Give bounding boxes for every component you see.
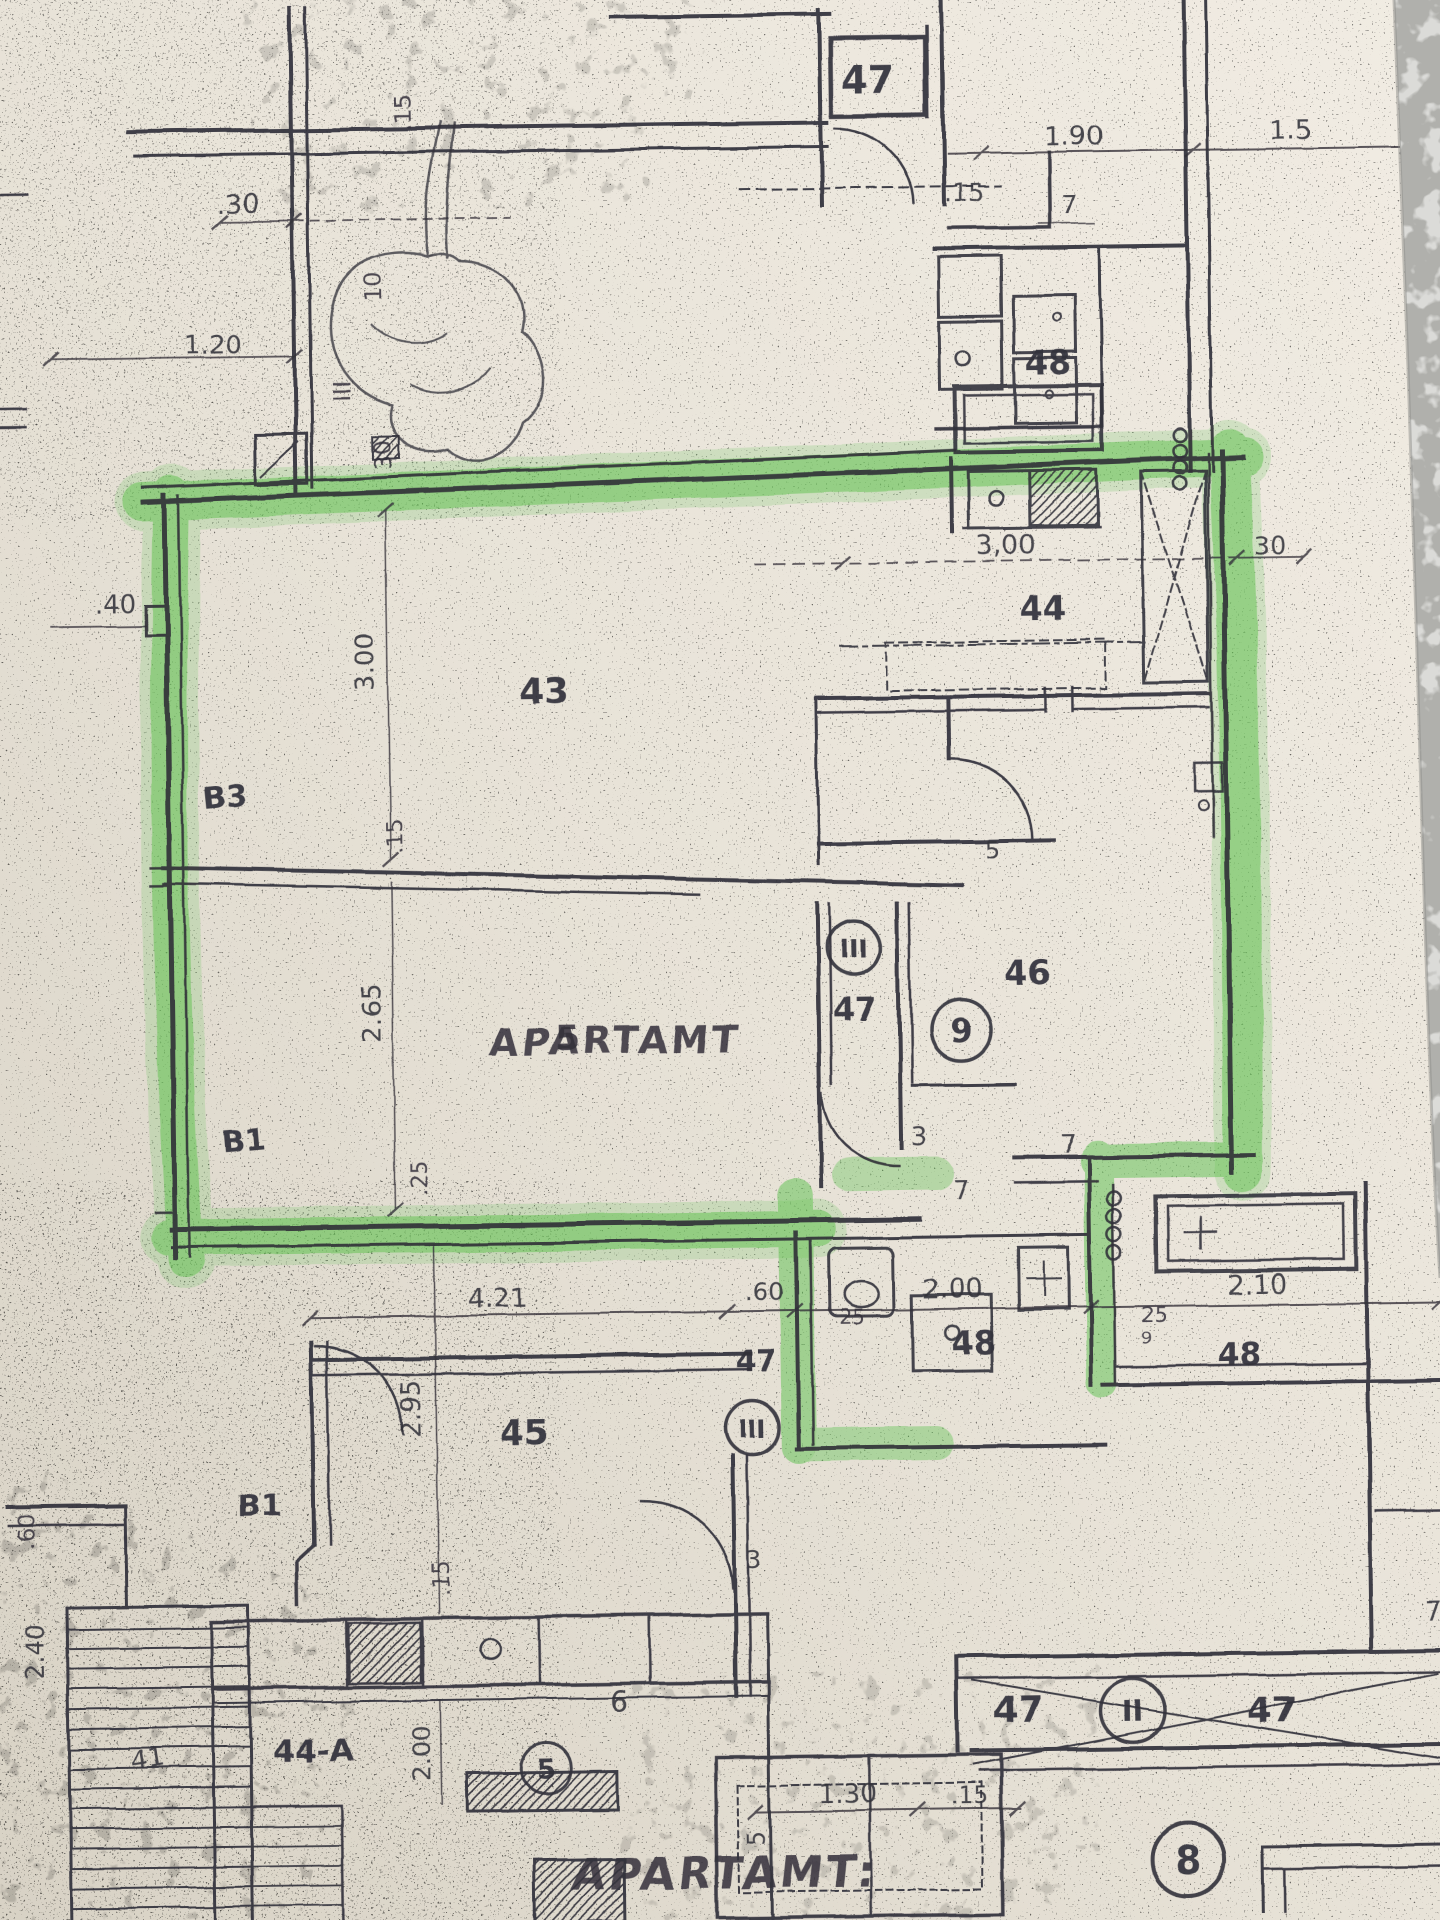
dim-15-lower-vert: .15 (429, 1560, 454, 1595)
svg-text:II: II (1121, 1694, 1143, 1728)
balcony-label-b1-lower: B1 (237, 1489, 281, 1525)
dim-40: .40 (94, 589, 136, 620)
dim-130: 1.30 (819, 1779, 877, 1810)
unit-word: APARTAMT (488, 1017, 743, 1064)
balcony-label-b1: B1 (221, 1122, 268, 1161)
room-label-43: 43 (519, 670, 570, 712)
corridor-47-left: 47 (993, 1690, 1044, 1732)
highlight-right-stub (1099, 1155, 1102, 1383)
room-label-45: 45 (499, 1412, 550, 1454)
num-41: 41 (129, 1743, 166, 1778)
room-label-48-right: 48 (1218, 1336, 1262, 1373)
room-label-46: 46 (1004, 952, 1052, 993)
dim-15-top: .15 (944, 178, 984, 208)
dim-265-vert: 2.65 (357, 984, 388, 1042)
dim-15-vert: .15 (390, 94, 417, 131)
dim-30-right: 30 (1254, 531, 1286, 560)
svg-text:III: III (839, 935, 868, 965)
dim-421: 4.21 (466, 1283, 527, 1315)
door-swing-3: 3 (910, 1122, 927, 1152)
dim-7-mid: 7 (953, 1176, 970, 1206)
dim-6: 6 (611, 1684, 630, 1718)
corridor-47-right: 47 (1247, 1690, 1298, 1732)
room-label-47-top: 47 (841, 57, 894, 102)
dim-15-right: 1.5 (1269, 115, 1312, 147)
dim-10-vert: 10 (360, 272, 386, 302)
dim-200-vert-lower: 2.00 (407, 1725, 437, 1781)
dim-5-vert-bottom: 5 (742, 1830, 770, 1846)
bath-label-48: 48 (951, 1324, 996, 1363)
highlight-connector (1097, 1159, 1247, 1161)
lobby-label-47: 47 (734, 1344, 776, 1380)
dim-240-left-vert: 2.40 (20, 1624, 50, 1680)
room-label-44: 44 (1018, 588, 1066, 629)
dim-60: .60 (745, 1277, 785, 1307)
svg-text:8: 8 (1175, 1838, 1202, 1882)
dim-7-top: 7 (1061, 190, 1078, 220)
dim-15-mid-vert: .15 (383, 819, 408, 854)
dim-300-kitchen: 3,00 (976, 530, 1037, 562)
dim-30-vert: 30 (371, 440, 397, 470)
dim-9-small: 9 (1141, 1329, 1152, 1349)
dim-7-corridor: 7 (1425, 1597, 1440, 1627)
dim-5-small: 5 (985, 836, 1001, 864)
roman-3-vert: III (328, 380, 356, 402)
dim-25-a: 25 (838, 1305, 865, 1329)
room-label-44a: 44-A (273, 1733, 354, 1770)
photographed-floor-plan: 47 .15 1.90 1.5 7 48 .30 1.20 .15 10 III… (0, 0, 1440, 1920)
floor-plan-svg: 47 .15 1.90 1.5 7 48 .30 1.20 .15 10 III… (0, 0, 1440, 1920)
dim-7-connector: 7 (1060, 1130, 1077, 1160)
svg-text:III: III (738, 1414, 766, 1443)
dim-210: 2.10 (1226, 1269, 1287, 1301)
dim-200: 2.00 (922, 1273, 983, 1305)
dim-30-topleft: .30 (217, 189, 259, 220)
hall-label-47: 47 (832, 990, 877, 1029)
dim-25-vert: .25 (408, 1161, 433, 1196)
svg-text:9: 9 (950, 1012, 973, 1050)
balcony-label-b3: B3 (201, 778, 248, 817)
dim-190: 1.90 (1043, 121, 1104, 153)
dim-295-vert: 2.95 (397, 1379, 428, 1437)
room-label-48-top: 48 (1024, 342, 1070, 382)
door-swing-3-lower: 3 (746, 1544, 762, 1573)
dim-120: 1.20 (184, 330, 242, 361)
dim-60-left-vert: .60 (14, 1513, 41, 1550)
dim-300-vert: 3.00 (350, 633, 381, 691)
dim-15-bottom: .15 (950, 1781, 989, 1810)
footer-apartment-label: APARTAMT: (570, 1846, 880, 1901)
svg-text:5: 5 (537, 1754, 556, 1785)
dim-25-b: 25 (1140, 1303, 1167, 1327)
